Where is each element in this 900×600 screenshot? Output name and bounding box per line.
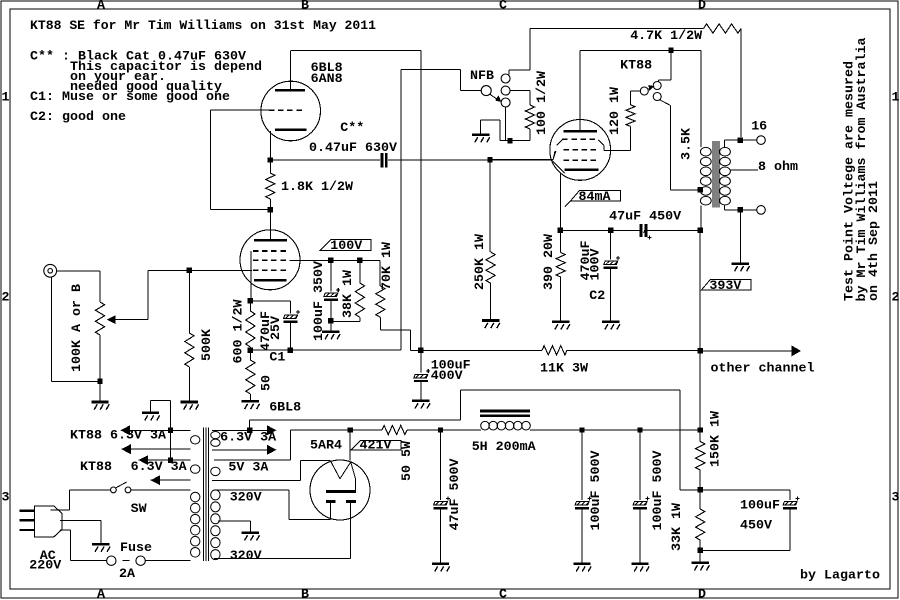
svg-text:11K 3W: 11K 3W	[540, 361, 588, 376]
svg-text:5AR4: 5AR4	[310, 439, 342, 454]
svg-text:3.5K: 3.5K	[680, 128, 695, 160]
svg-text:320V: 320V	[230, 491, 262, 506]
svg-text:421V: 421V	[360, 439, 392, 454]
svg-text:8 ohm: 8 ohm	[758, 160, 798, 175]
svg-text:2A: 2A	[119, 567, 135, 582]
svg-text:47uF 500V: 47uF 500V	[448, 459, 463, 531]
svg-text:KT88: KT88	[80, 460, 112, 475]
svg-text:50 5W: 50 5W	[400, 441, 415, 481]
svg-text:100uF 350V: 100uF 350V	[312, 261, 327, 341]
svg-text:C1: C1	[269, 351, 285, 366]
svg-text:100uF: 100uF	[740, 498, 780, 513]
svg-text:6BL8: 6BL8	[269, 401, 301, 416]
svg-text:100uF 500V: 100uF 500V	[651, 451, 666, 531]
svg-text:on 4th Sep 2011: on 4th Sep 2011	[867, 181, 882, 301]
svg-text:5V 3A: 5V 3A	[228, 461, 268, 476]
svg-text:450V: 450V	[740, 518, 772, 533]
svg-text:6AN8: 6AN8	[311, 72, 343, 87]
svg-text:2: 2	[892, 291, 900, 306]
svg-text:1: 1	[2, 91, 10, 106]
svg-text:C**: C**	[340, 121, 364, 136]
svg-text:Fuse: Fuse	[120, 541, 152, 556]
svg-text:220V: 220V	[29, 558, 61, 573]
svg-text:250K 1W: 250K 1W	[473, 234, 488, 290]
svg-text:3: 3	[2, 491, 10, 506]
svg-text:84mA: 84mA	[579, 190, 611, 205]
svg-text:0.47uF 630V: 0.47uF 630V	[309, 141, 397, 156]
svg-text:50: 50	[260, 375, 275, 391]
svg-text:D: D	[698, 0, 706, 14]
svg-text:390 20W: 390 20W	[542, 234, 557, 290]
svg-text:100V: 100V	[589, 249, 604, 281]
svg-text:16: 16	[751, 120, 767, 135]
svg-text:320V: 320V	[230, 549, 262, 564]
svg-text:C: C	[499, 588, 507, 600]
svg-text:NFB: NFB	[470, 69, 494, 84]
svg-text:SW: SW	[131, 502, 147, 517]
svg-text:100V: 100V	[330, 239, 362, 254]
svg-text:C: C	[499, 0, 507, 14]
svg-text:1.8K 1/2W: 1.8K 1/2W	[281, 180, 353, 195]
svg-text:KT88 SE for Mr Tim Williams on: KT88 SE for Mr Tim Williams on 31st May …	[30, 19, 376, 34]
svg-text:3: 3	[892, 491, 900, 506]
svg-text:6.3V 3A: 6.3V 3A	[131, 460, 187, 475]
svg-text:120 1W: 120 1W	[608, 87, 623, 135]
svg-text:C2: C2	[589, 289, 605, 304]
svg-text:38K 1W: 38K 1W	[341, 270, 356, 318]
svg-text:70K 1W: 70K 1W	[380, 242, 395, 290]
svg-text:A: A	[97, 0, 105, 14]
svg-text:150K 1W: 150K 1W	[709, 411, 724, 467]
svg-text:500K: 500K	[200, 329, 215, 361]
svg-text:100K A or B: 100K A or B	[70, 284, 85, 372]
svg-text:A: A	[97, 588, 105, 600]
svg-text:C2: good one: C2: good one	[30, 110, 126, 125]
svg-text:6.3V 3A: 6.3V 3A	[220, 430, 276, 445]
svg-text:400V: 400V	[431, 369, 463, 384]
svg-text:KT88: KT88	[620, 59, 652, 74]
svg-text:B: B	[301, 588, 309, 600]
svg-text:D: D	[698, 588, 706, 600]
svg-text:393V: 393V	[709, 279, 741, 294]
svg-text:KT88 6.3V 3A: KT88 6.3V 3A	[70, 428, 166, 443]
svg-text:C1: Muse or some good one: C1: Muse or some good one	[30, 90, 230, 105]
svg-text:5H 200mA: 5H 200mA	[472, 440, 536, 455]
svg-text:4.7K 1/2W: 4.7K 1/2W	[630, 29, 702, 44]
svg-text:47uF 450V: 47uF 450V	[609, 210, 681, 225]
svg-text:25V: 25V	[269, 316, 284, 340]
svg-text:by Lagarto: by Lagarto	[800, 568, 880, 583]
svg-text:33K 1W: 33K 1W	[670, 503, 685, 551]
svg-text:1: 1	[892, 91, 900, 106]
svg-text:100 1/2W: 100 1/2W	[535, 71, 550, 135]
svg-text:600 1/2W: 600 1/2W	[232, 300, 247, 364]
svg-text:2: 2	[2, 291, 10, 306]
svg-text:other channel: other channel	[711, 361, 815, 376]
svg-text:100uF 500V: 100uF 500V	[589, 451, 604, 531]
svg-text:B: B	[301, 0, 309, 14]
